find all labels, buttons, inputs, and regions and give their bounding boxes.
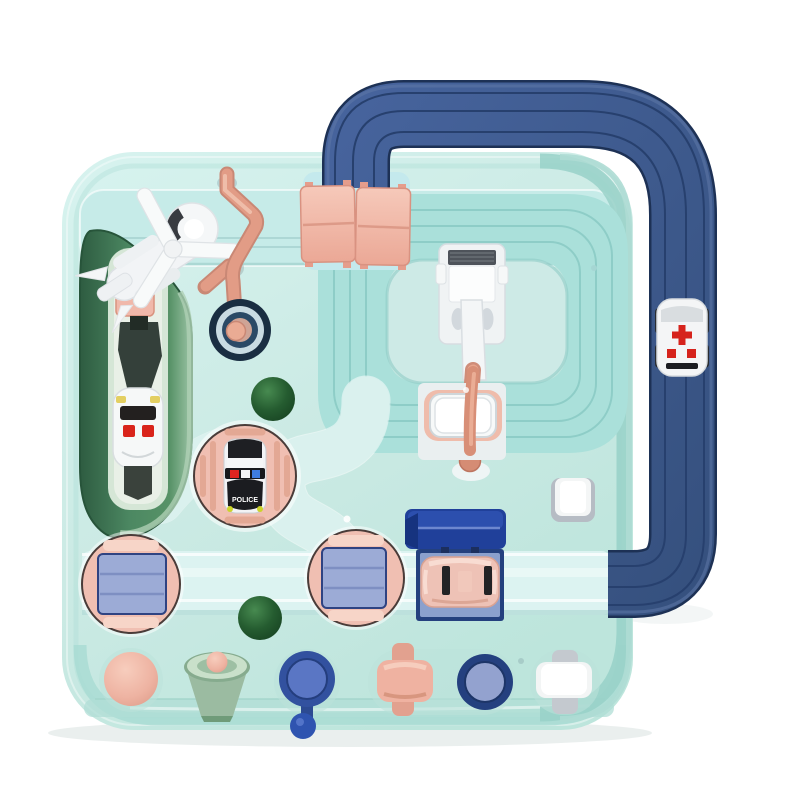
- svg-text:POLICE: POLICE: [232, 497, 258, 504]
